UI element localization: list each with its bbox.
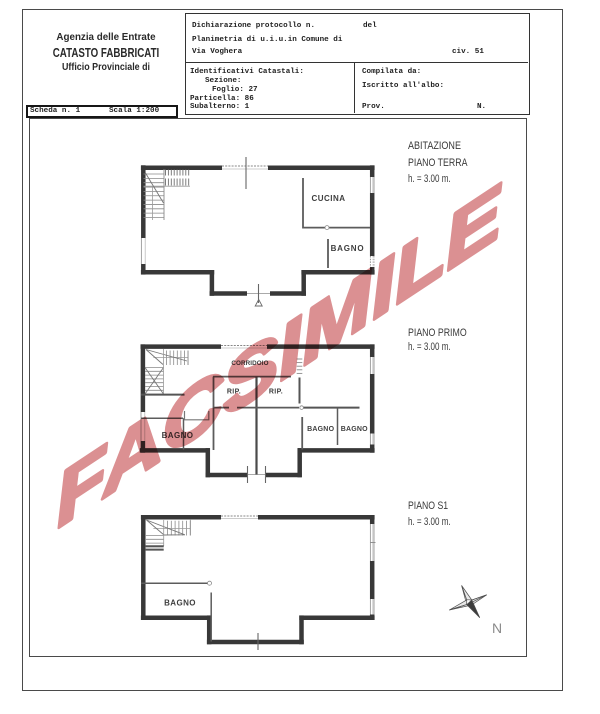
svg-text:FACSIMILE: FACSIMILE [52,169,507,544]
